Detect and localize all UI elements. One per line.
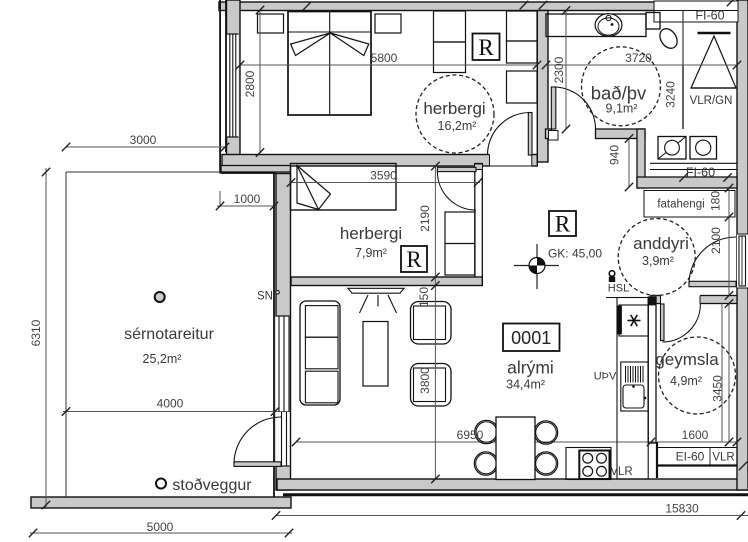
svg-text:3720: 3720 [625,51,652,65]
svg-text:6950: 6950 [457,428,484,442]
svg-text:2100: 2100 [709,227,723,254]
svg-text:fatahengi: fatahengi [657,199,704,211]
svg-text:25,2m²: 25,2m² [143,352,182,366]
svg-text:0001: 0001 [511,328,551,348]
svg-text:UÞV: UÞV [594,371,617,383]
svg-text:16,2m²: 16,2m² [438,119,477,133]
svg-text:sérnotareitur: sérnotareitur [124,326,214,343]
svg-text:GK: 45,00: GK: 45,00 [548,247,602,261]
svg-text:5000: 5000 [147,520,174,534]
svg-text:herbergi: herbergi [340,224,402,243]
svg-text:15830: 15830 [665,502,699,516]
svg-text:940: 940 [608,145,622,165]
svg-text:FI-60: FI-60 [686,166,715,180]
svg-text:1000: 1000 [234,192,261,206]
svg-text:stoðveggur: stoðveggur [172,477,252,494]
svg-text:VLR/GN: VLR/GN [690,95,733,107]
svg-text:7,9m²: 7,9m² [355,246,387,260]
svg-text:R: R [406,247,422,272]
svg-text:3590: 3590 [370,169,397,183]
svg-text:3450: 3450 [711,375,725,402]
svg-text:4,9m²: 4,9m² [670,374,702,388]
svg-text:R: R [555,212,571,237]
svg-text:R: R [478,35,494,60]
svg-text:HSL: HSL [608,283,629,295]
svg-text:2300: 2300 [552,56,566,83]
svg-text:2800: 2800 [243,70,257,97]
svg-text:5800: 5800 [371,51,398,65]
svg-text:herbergi: herbergi [423,99,485,118]
svg-text:4000: 4000 [157,397,184,411]
svg-text:3800: 3800 [418,367,432,394]
svg-text:3,9m²: 3,9m² [642,254,674,268]
svg-text:alrými: alrými [507,358,554,378]
svg-text:9,1m²: 9,1m² [606,102,638,116]
svg-text:anddyri: anddyri [633,234,689,253]
svg-text:2190: 2190 [418,205,432,232]
svg-text:34,4m²: 34,4m² [506,378,545,392]
svg-text:bað/þv: bað/þv [591,83,647,104]
svg-text:EI-60: EI-60 [676,450,705,464]
svg-text:geymsla: geymsla [655,350,719,369]
svg-text:1600: 1600 [682,428,709,442]
svg-text:VLR: VLR [610,466,632,478]
svg-text:VLR: VLR [712,452,734,464]
svg-text:3000: 3000 [130,133,157,147]
svg-text:SN: SN [257,291,273,303]
svg-text:150: 150 [417,287,431,307]
svg-text:FI-60: FI-60 [695,9,724,23]
svg-text:180: 180 [709,191,723,211]
svg-text:3240: 3240 [664,81,678,108]
svg-text:6310: 6310 [29,319,43,346]
